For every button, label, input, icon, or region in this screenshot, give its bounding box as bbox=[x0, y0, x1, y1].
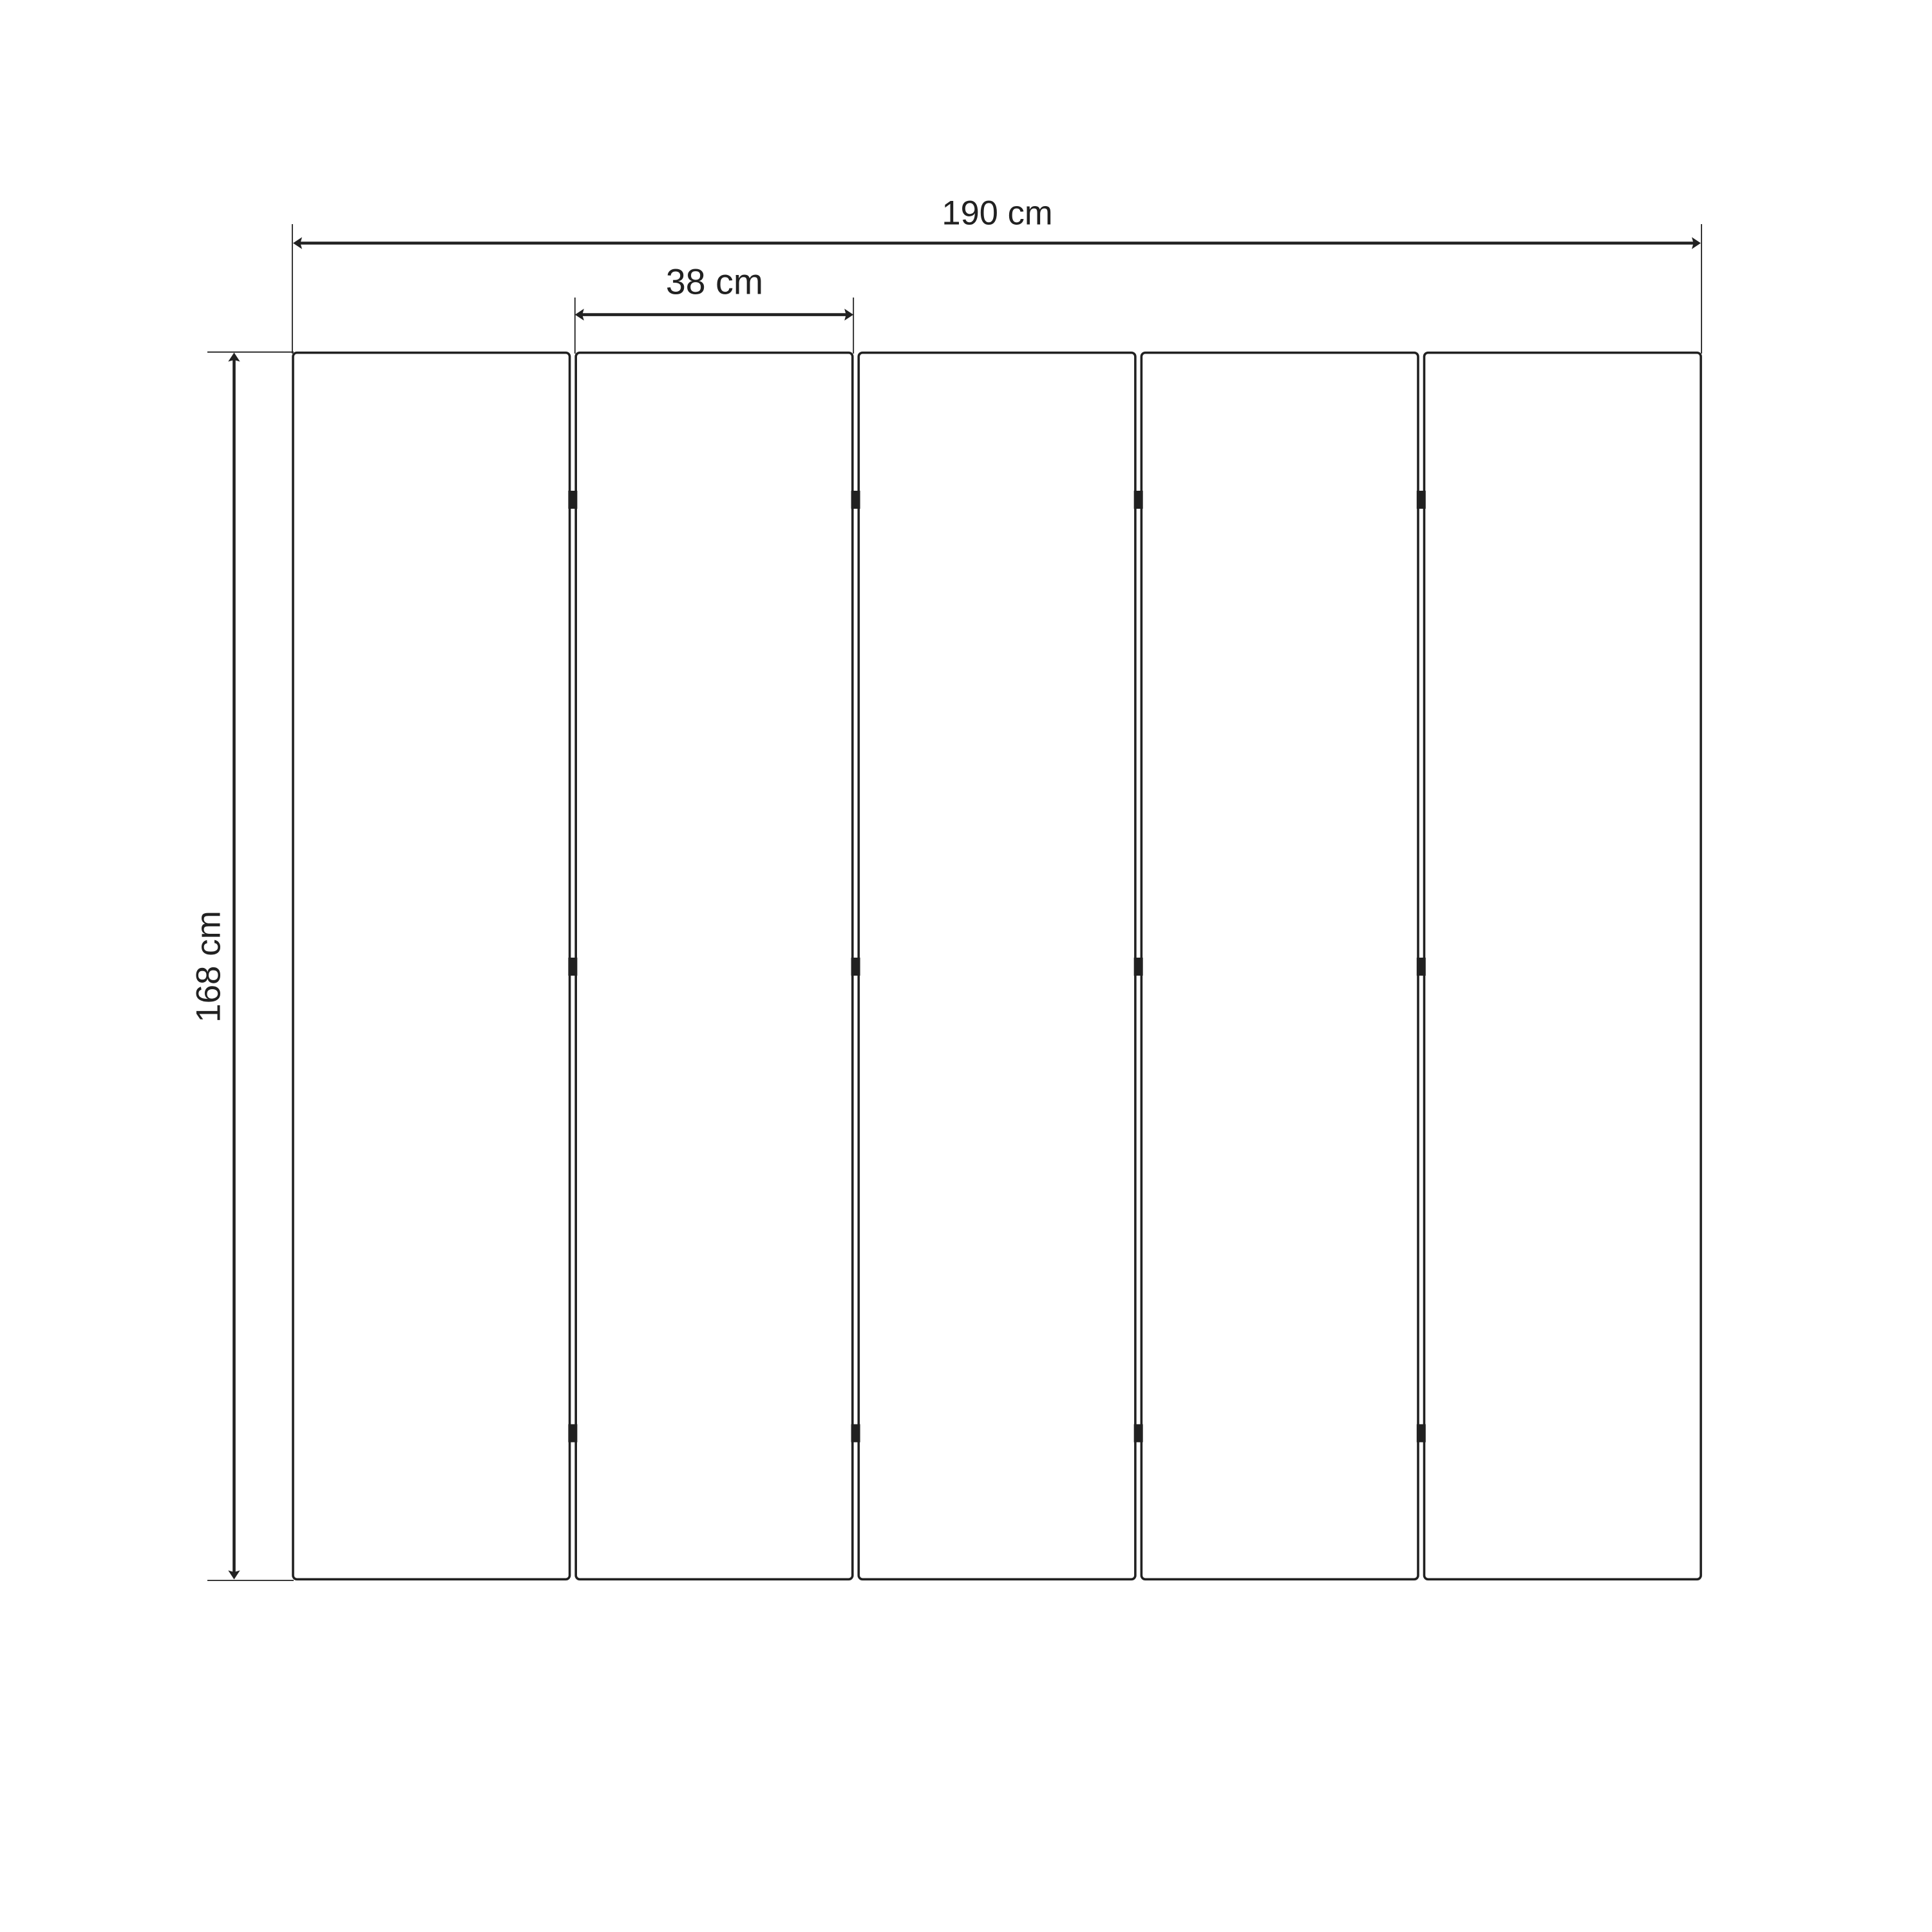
svg-text:38 cm: 38 cm bbox=[666, 262, 763, 302]
svg-text:190 cm: 190 cm bbox=[942, 194, 1052, 232]
svg-text:168 cm: 168 cm bbox=[190, 911, 228, 1023]
